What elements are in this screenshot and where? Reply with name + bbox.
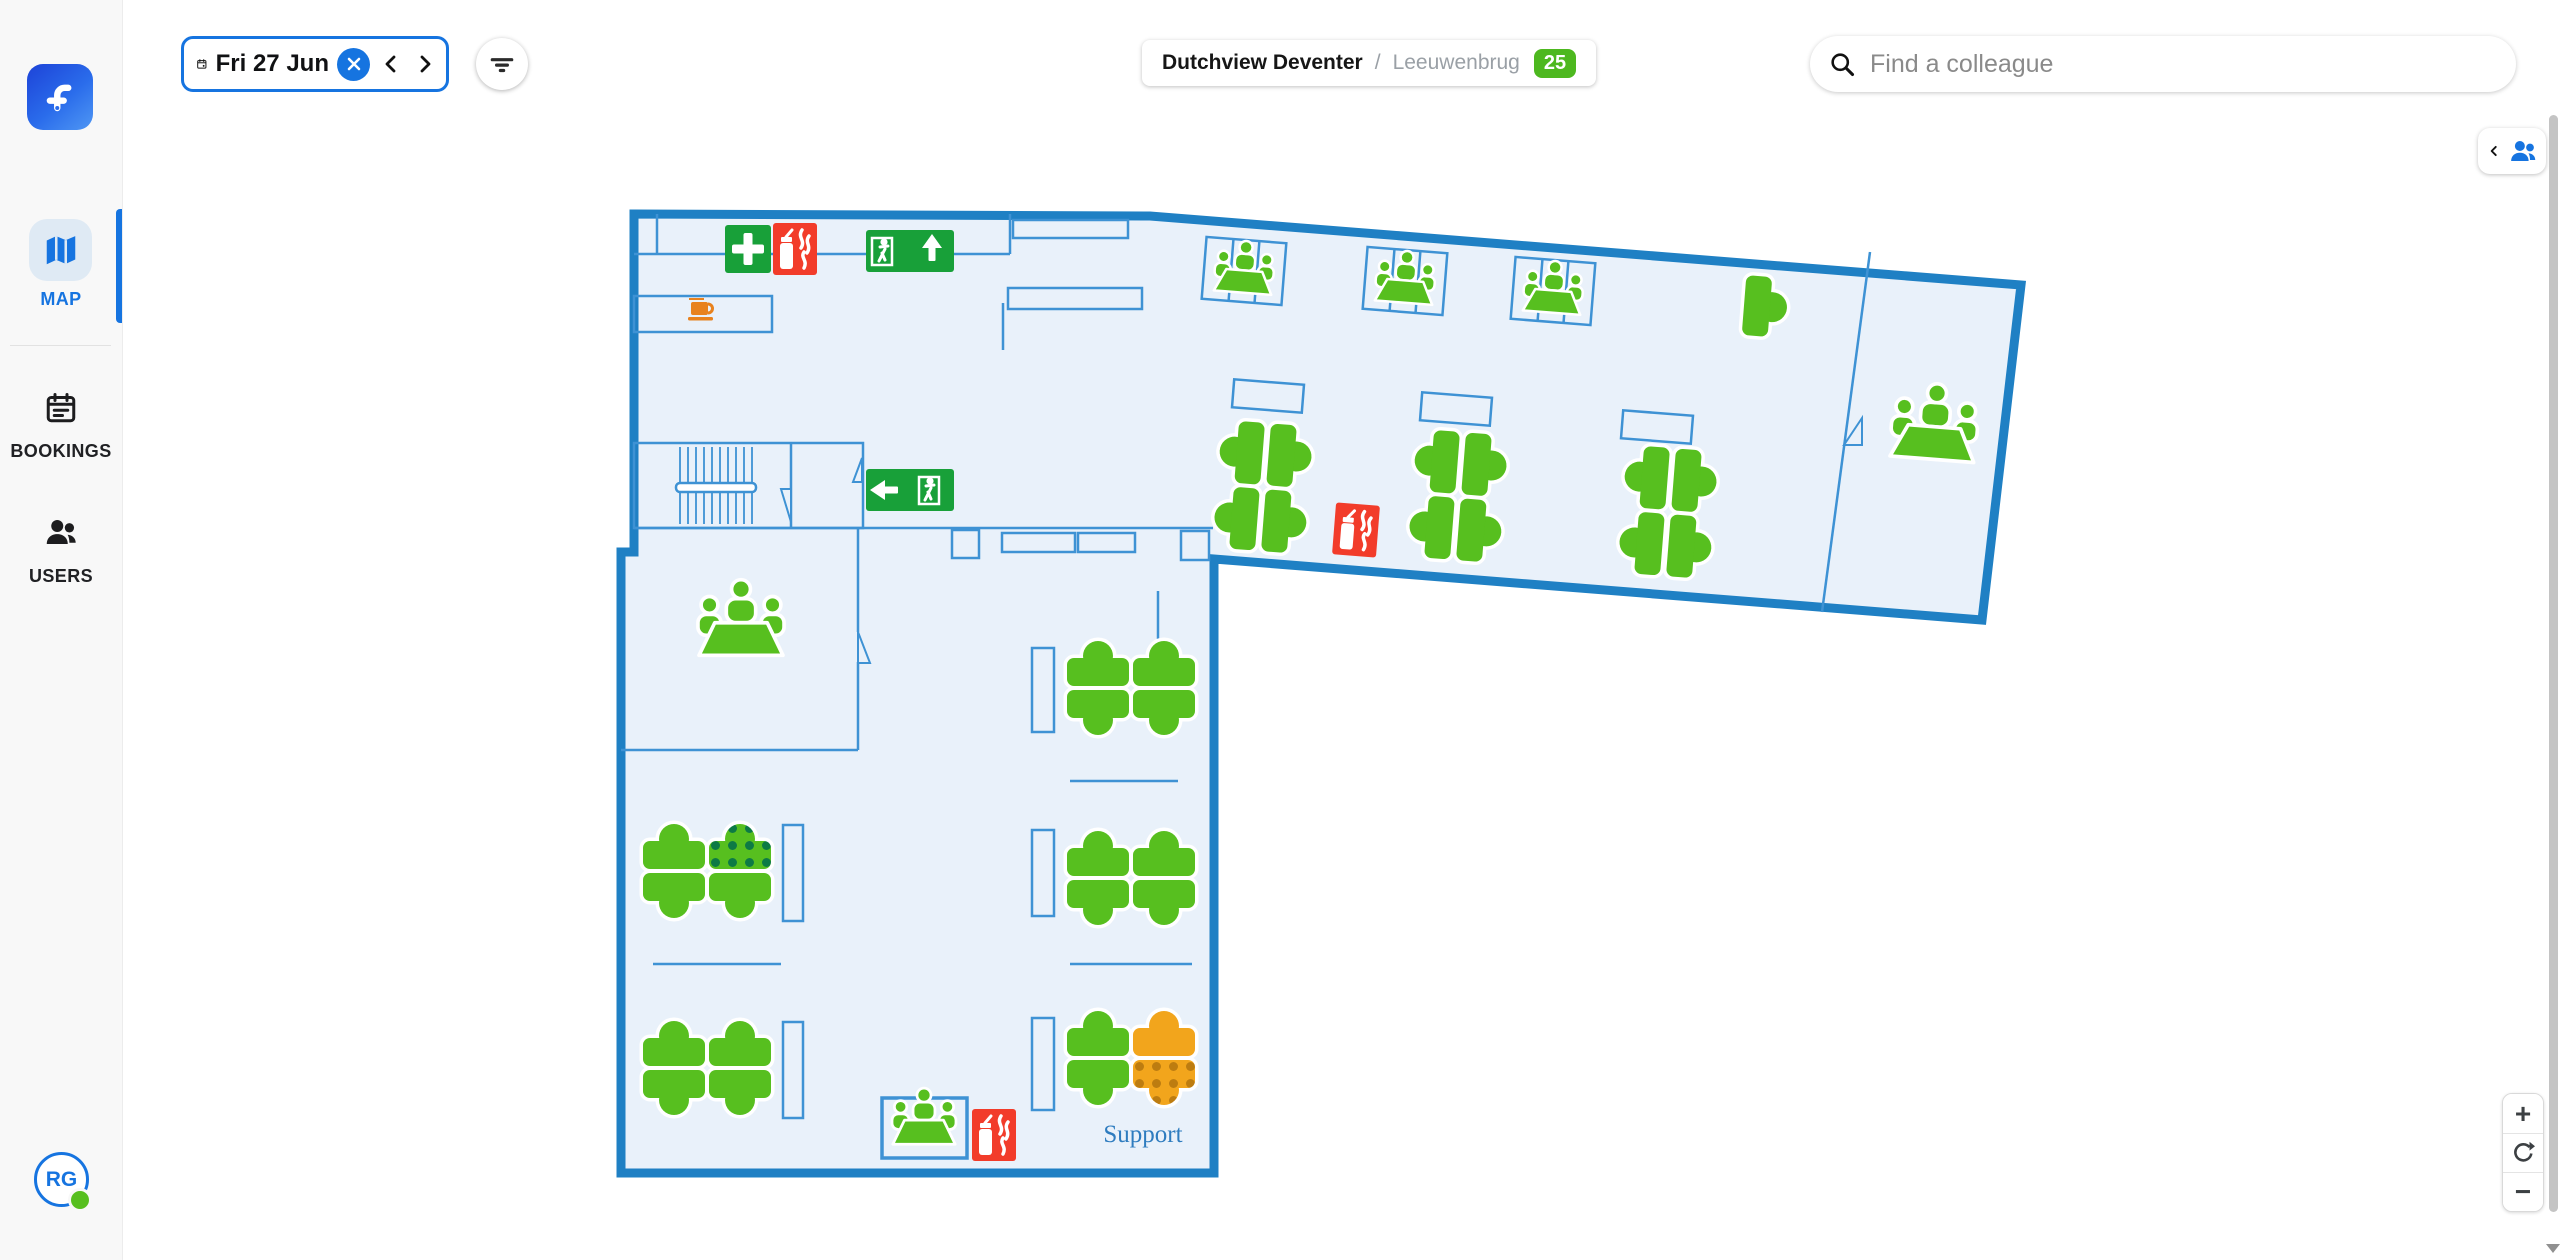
next-day-button[interactable] [412, 51, 438, 77]
sidebar-item-label: USERS [0, 566, 122, 587]
breadcrumb-site[interactable]: Dutchview Deventer [1162, 51, 1363, 75]
filter-icon [488, 50, 516, 78]
map-icon [42, 231, 80, 269]
presence-status-dot [68, 1188, 92, 1212]
sidebar: MAP BOOKINGS USERS RG [0, 0, 123, 1260]
chevron-right-icon [413, 52, 437, 76]
room-label-support: Support [1103, 1121, 1182, 1148]
selected-date: Fri 27 Jun [216, 50, 329, 78]
bookings-icon [43, 390, 79, 426]
exit-left-icon [866, 469, 954, 511]
floor-count-badge: 25 [1534, 49, 1576, 78]
calendar-icon [196, 50, 208, 78]
colleagues-panel-toggle[interactable] [2478, 128, 2546, 174]
search-icon [1828, 50, 1856, 78]
chevron-left-icon [379, 52, 403, 76]
refresh-icon [2511, 1141, 2535, 1165]
colleague-search[interactable] [1810, 36, 2516, 92]
building-outline [621, 214, 2021, 1173]
app-logo[interactable] [27, 64, 93, 130]
users-icon [43, 514, 79, 550]
zoom-in-button[interactable]: + [2503, 1094, 2543, 1133]
sidebar-item-label: BOOKINGS [0, 441, 122, 462]
fire-extinguisher-icon [972, 1109, 1016, 1161]
breadcrumb-floor: Leeuwenbrug [1393, 51, 1520, 75]
previous-day-button[interactable] [378, 51, 404, 77]
active-indicator [116, 209, 122, 323]
fire-extinguisher-icon [1332, 502, 1380, 557]
date-picker[interactable]: Fri 27 Jun [181, 36, 449, 92]
search-input[interactable] [1868, 49, 2498, 80]
colleagues-icon [2508, 136, 2538, 166]
first-aid-icon [725, 225, 771, 273]
reset-view-button[interactable] [2503, 1133, 2543, 1172]
chevron-left-icon [2487, 142, 2501, 160]
map-icon-box[interactable] [29, 219, 92, 281]
sidebar-item-label: MAP [0, 289, 122, 310]
scrollbar-down-arrow[interactable] [2546, 1244, 2560, 1253]
filter-button[interactable] [476, 38, 528, 90]
map-zoom-controls: + − [2502, 1093, 2544, 1212]
flexwhere-logo-icon [38, 75, 82, 119]
sidebar-divider [10, 345, 111, 346]
zoom-out-button[interactable]: − [2503, 1172, 2543, 1211]
fire-extinguisher-icon [773, 223, 817, 275]
floor-plan[interactable]: Support [0, 0, 2560, 1260]
exit-up-icon [866, 230, 954, 272]
breadcrumb-separator: / [1375, 51, 1381, 75]
clear-date-button[interactable] [337, 48, 370, 81]
scrollbar-thumb[interactable] [2549, 115, 2558, 1212]
breadcrumb: Dutchview Deventer / Leeuwenbrug 25 [1142, 40, 1596, 86]
close-icon [347, 57, 361, 71]
avatar-initials: RG [46, 1168, 78, 1192]
